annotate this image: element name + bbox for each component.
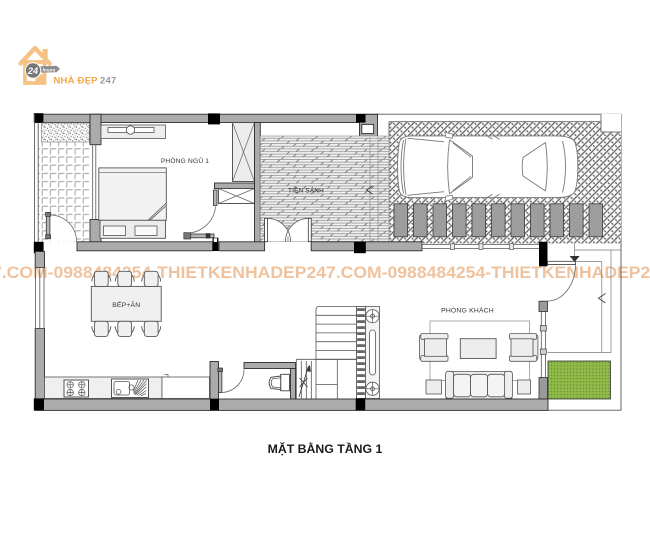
svg-text:247: 247 <box>100 76 116 87</box>
svg-text:PHÒNG KHÁCH: PHÒNG KHÁCH <box>441 306 494 315</box>
svg-text:hours: hours <box>43 67 56 72</box>
svg-text:PHÒNG NGỦ 1: PHÒNG NGỦ 1 <box>161 156 209 165</box>
svg-text:24: 24 <box>27 66 38 76</box>
svg-text:NHÀ ĐẸP: NHÀ ĐẸP <box>54 76 99 87</box>
svg-text:MẶT BẰNG TẦNG 1: MẶT BẰNG TẦNG 1 <box>268 441 383 456</box>
